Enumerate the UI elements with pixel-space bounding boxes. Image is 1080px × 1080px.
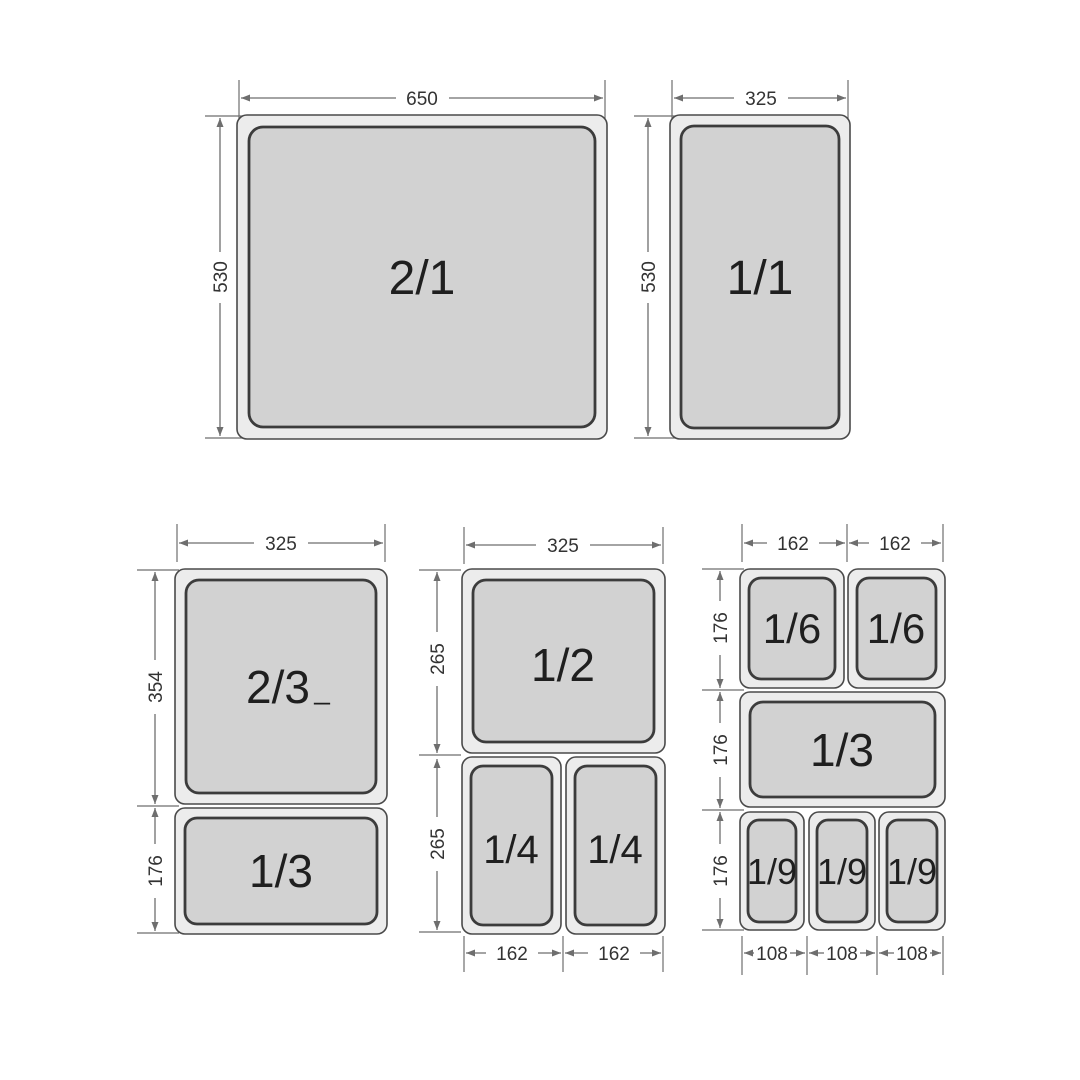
pan-1-3-right-label: 1/3 [810, 724, 874, 776]
dim-width-1-9-3: 108 [896, 944, 928, 965]
dim-height-2-1: 530 [211, 261, 232, 293]
dim-width-2-3: 325 [265, 534, 297, 555]
dim-width-1-9-1: 108 [756, 944, 788, 965]
dim-width-2-1: 650 [406, 89, 438, 110]
dim-height-row-2: 176 [711, 734, 732, 766]
pan-1-2-label: 1/2 [531, 639, 595, 691]
pan-2-3-label-mark: _ [313, 674, 330, 705]
pan-1-6-right-label: 1/6 [867, 605, 925, 652]
pan-2-1-label: 2/1 [389, 252, 456, 305]
group-2-1: 650 530 2/1 [205, 80, 607, 439]
pan-1-4-right-label: 1/4 [587, 828, 643, 872]
dim-width-1-4-left: 162 [496, 944, 528, 965]
group-1-6: 162 162 176 176 176 108 108 108 1/6 1/6 … [702, 524, 945, 975]
dim-width-1-2: 325 [547, 536, 579, 557]
dim-width-1-4-right: 162 [598, 944, 630, 965]
dim-height-1-4: 265 [428, 828, 449, 860]
dim-width-1-1: 325 [745, 89, 777, 110]
dim-width-1-6-left: 162 [777, 534, 809, 555]
dim-height-1-3-left: 176 [146, 855, 167, 887]
group-1-2: 325 265 265 162 162 1/2 1/4 1/4 [419, 527, 665, 972]
gastronorm-size-diagram: 650 530 2/1 325 530 1/1 325 [0, 0, 1080, 1080]
pan-1-9-3-label: 1/9 [887, 851, 937, 892]
pan-1-4-left-label: 1/4 [483, 828, 539, 872]
dim-height-2-3: 354 [146, 671, 167, 703]
pan-1-6-left-label: 1/6 [763, 605, 821, 652]
group-1-1: 325 530 1/1 [634, 80, 850, 439]
pan-1-1-label: 1/1 [727, 252, 794, 305]
dim-height-1-1: 530 [639, 261, 660, 293]
dim-height-row-3: 176 [711, 855, 732, 887]
group-2-3: 325 354 176 2/3 _ 1/3 [137, 524, 387, 934]
dim-width-1-6-right: 162 [879, 534, 911, 555]
diagram-canvas: 650 530 2/1 325 530 1/1 325 [0, 0, 1080, 1080]
pan-2-3-label: 2/3 [246, 661, 310, 713]
pan-1-3-left-label: 1/3 [249, 845, 313, 897]
pan-1-9-2-label: 1/9 [817, 851, 867, 892]
dim-height-row-1: 176 [711, 612, 732, 644]
dim-width-1-9-2: 108 [826, 944, 858, 965]
pan-1-9-1-label: 1/9 [747, 851, 797, 892]
dim-height-1-2: 265 [428, 643, 449, 675]
